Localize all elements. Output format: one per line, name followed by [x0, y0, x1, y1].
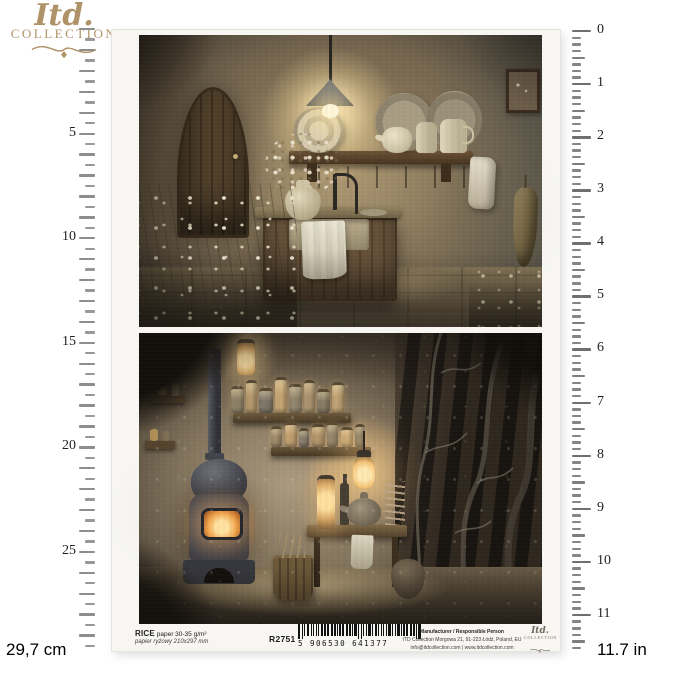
- product-name: RICE paper 30-35 g/m²: [135, 629, 208, 639]
- cm-total-caption: 29,7 cm: [6, 640, 66, 660]
- texture-grain: [139, 35, 542, 327]
- inch-total-caption: 11.7 in: [597, 640, 647, 660]
- product-mockup: Itd. COLLECTION 510152025 01234567891011…: [0, 0, 680, 680]
- artwork-top-cottage-kitchen: [139, 35, 542, 327]
- product-info: RICE paper 30-35 g/m² papier ryżowy 210x…: [135, 629, 208, 647]
- manufacturer-title: Manufacturer / Responsible Person: [402, 629, 522, 637]
- footer-logo-script: Itd.: [524, 627, 556, 635]
- rice-paper-sheet: RICE paper 30-35 g/m² papier ryżowy 210x…: [112, 30, 560, 651]
- product-code: R2751: [269, 634, 296, 644]
- product-subtitle: papier ryżowy 210x297 mm: [135, 639, 208, 647]
- artwork-bottom-burrow-kitchen: [139, 333, 542, 624]
- manufacturer-address: ITD Collection Morgowa 21, 91-223 Łódź, …: [402, 637, 522, 645]
- texture-grain: [139, 333, 542, 624]
- product-name-bold: RICE: [135, 629, 155, 638]
- manufacturer-contact: info@itdcollection.com | www.itdcollecti…: [402, 645, 522, 653]
- footer-logo-word: COLLECTION: [524, 635, 556, 640]
- footer-brand-logo: Itd. COLLECTION: [524, 627, 556, 658]
- manufacturer-block: Manufacturer / Responsible Person ITD Co…: [402, 629, 522, 652]
- product-name-rest: paper 30-35 g/m²: [155, 631, 207, 638]
- footer-flourish-icon: [529, 648, 551, 653]
